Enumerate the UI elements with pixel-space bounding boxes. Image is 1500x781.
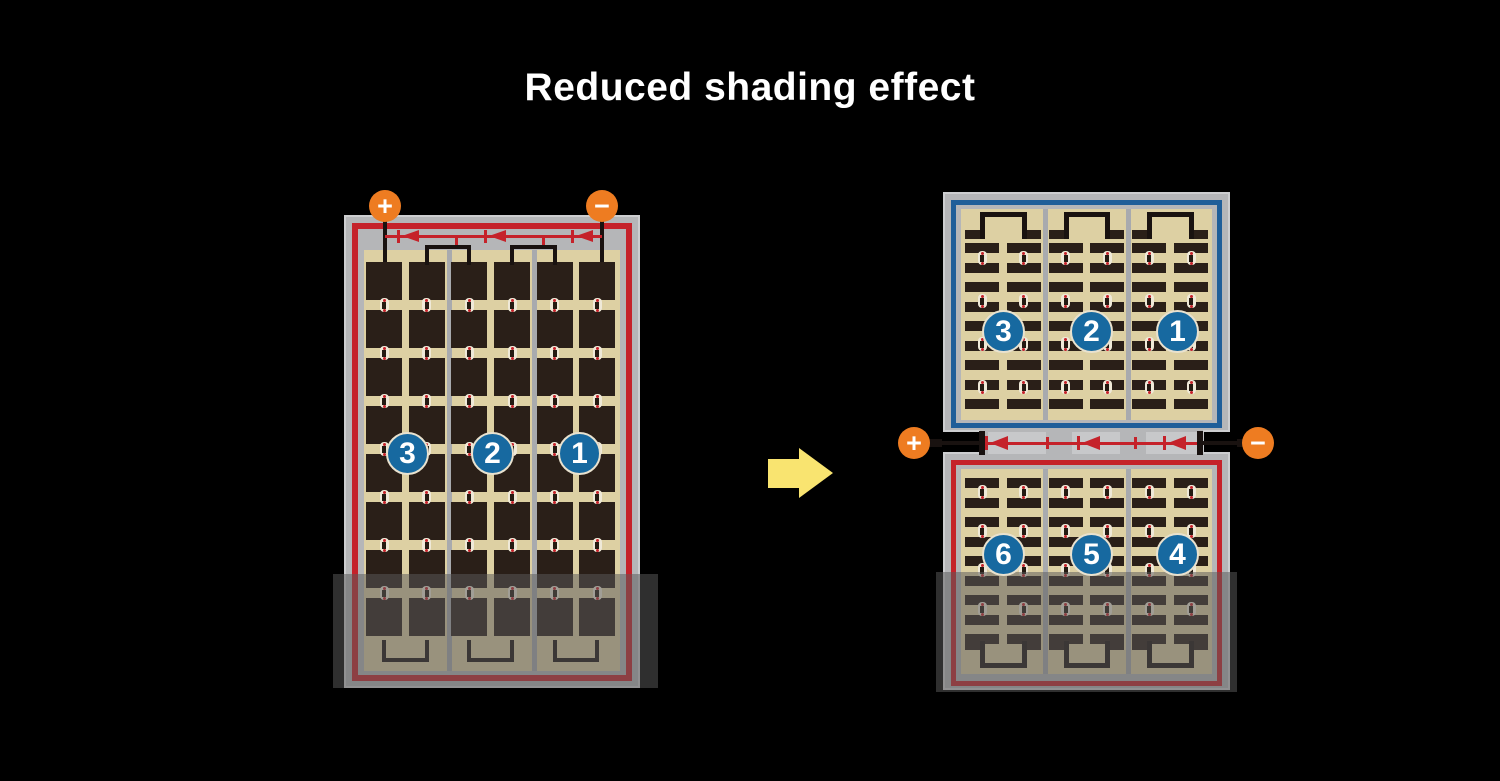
diagram-title: Reduced shading effect — [0, 66, 1500, 110]
cell-connector-dot — [1103, 485, 1112, 499]
reduced-shading-diagram: Reduced shading effect + − 3 2 1 + − 3 2… — [0, 0, 1500, 781]
solar-cell — [579, 358, 615, 396]
cell-connector-dot — [550, 346, 559, 360]
string-jumper-wire — [425, 245, 429, 265]
half-cell-bar — [965, 282, 999, 292]
solar-cell — [451, 502, 487, 540]
left-string-number-3: 3 — [386, 432, 429, 475]
cell-connector-dot — [978, 380, 987, 394]
solar-cell — [409, 310, 445, 348]
cell-connector-dot — [1061, 294, 1070, 308]
half-cell-bar — [1174, 282, 1208, 292]
half-cell-bar — [1110, 230, 1124, 239]
cell-connector-dot — [1061, 485, 1070, 499]
solar-cell — [537, 262, 573, 300]
solar-cell — [409, 502, 445, 540]
half-cell-bar — [1049, 230, 1064, 239]
diode-cathode-bar — [985, 436, 988, 450]
right-top-string-divider — [1126, 209, 1131, 420]
cell-connector-dot — [1187, 485, 1196, 499]
cell-connector-dot — [380, 538, 389, 552]
cell-connector-dot — [1145, 251, 1154, 265]
solar-cell — [494, 262, 530, 300]
string-jumper-wire — [1147, 212, 1194, 217]
cell-connector-dot — [1061, 251, 1070, 265]
diode-line-tick — [1046, 437, 1049, 449]
cell-connector-dot — [508, 490, 517, 504]
bypass-diode-icon — [402, 230, 419, 242]
cell-connector-dot — [593, 538, 602, 552]
cell-connector-dot — [380, 490, 389, 504]
string-jumper-wire — [510, 245, 514, 265]
half-cell-bar — [1132, 360, 1166, 370]
cell-connector-dot — [1019, 524, 1028, 538]
diode-cathode-bar — [484, 230, 487, 243]
left-panel-shading-overlay — [333, 574, 658, 688]
cell-connector-dot — [1061, 524, 1070, 538]
cell-connector-dot — [465, 394, 474, 408]
bypass-diode-icon — [990, 436, 1008, 450]
half-cell-bar — [1132, 230, 1147, 239]
half-cell-bar — [1007, 282, 1041, 292]
right-string-number-2: 2 — [1070, 310, 1113, 353]
cell-connector-dot — [550, 490, 559, 504]
diode-line-tick — [1134, 437, 1137, 449]
bypass-diode-icon — [576, 230, 593, 242]
right-string-number-3: 3 — [982, 310, 1025, 353]
right-negative-terminal: − — [1242, 427, 1274, 459]
half-cell-bar — [1174, 498, 1208, 508]
solar-cell — [494, 502, 530, 540]
left-string-number-2: 2 — [471, 432, 514, 475]
half-cell-bar — [1049, 399, 1083, 409]
cell-connector-dot — [1019, 485, 1028, 499]
cell-connector-dot — [1061, 337, 1070, 351]
cell-connector-dot — [1103, 251, 1112, 265]
plus-icon: + — [906, 430, 922, 457]
right-panel-shading-overlay — [936, 572, 1237, 692]
solar-cell — [579, 310, 615, 348]
cell-connector-dot — [550, 394, 559, 408]
cell-connector-dot — [380, 394, 389, 408]
string-jumper-wire — [467, 245, 471, 265]
string-jumper-wire — [1064, 212, 1069, 239]
half-cell-bar — [1027, 230, 1041, 239]
cell-connector-dot — [422, 538, 431, 552]
cell-connector-dot — [1145, 524, 1154, 538]
cell-connector-dot — [508, 346, 517, 360]
solar-cell — [409, 262, 445, 300]
plus-icon: + — [377, 193, 393, 220]
cell-connector-dot — [508, 298, 517, 312]
cell-connector-dot — [1019, 380, 1028, 394]
cell-connector-dot — [593, 394, 602, 408]
diode-cathode-bar — [397, 230, 400, 243]
cell-connector-dot — [422, 394, 431, 408]
half-cell-bar — [965, 360, 999, 370]
solar-cell — [451, 358, 487, 396]
bypass-diode-icon — [1168, 436, 1186, 450]
solar-cell — [494, 358, 530, 396]
half-cell-bar — [1007, 360, 1041, 370]
half-cell-bar — [1049, 282, 1083, 292]
right-string-number-1: 1 — [1156, 310, 1199, 353]
minus-icon: − — [594, 193, 610, 220]
half-cell-bar — [1049, 360, 1083, 370]
cell-connector-dot — [1187, 380, 1196, 394]
solar-cell — [537, 502, 573, 540]
half-cell-bar — [1132, 498, 1166, 508]
cell-connector-dot — [1061, 380, 1070, 394]
right-string-number-4: 4 — [1156, 533, 1199, 576]
half-cell-bar — [1174, 399, 1208, 409]
cell-connector-dot — [978, 524, 987, 538]
positive-bus-wire — [929, 439, 942, 447]
solar-cell — [366, 262, 402, 300]
cell-connector-dot — [380, 346, 389, 360]
right-string-number-6: 6 — [982, 533, 1025, 576]
cell-connector-dot — [508, 394, 517, 408]
cell-connector-dot — [550, 538, 559, 552]
cell-connector-dot — [1103, 380, 1112, 394]
cell-connector-dot — [593, 298, 602, 312]
cell-connector-dot — [1145, 380, 1154, 394]
string-jumper-wire — [553, 245, 557, 265]
solar-cell — [537, 358, 573, 396]
cell-connector-dot — [1145, 337, 1154, 351]
half-cell-bar — [1090, 399, 1124, 409]
cell-connector-dot — [465, 490, 474, 504]
string-jumper-wire — [510, 245, 557, 249]
cell-connector-dot — [550, 298, 559, 312]
cell-connector-dot — [508, 538, 517, 552]
half-cell-bar — [1194, 230, 1208, 239]
bus-end-bar — [979, 431, 985, 455]
half-cell-bar — [965, 399, 999, 409]
cell-connector-dot — [1145, 294, 1154, 308]
cell-connector-dot — [1187, 294, 1196, 308]
diode-cathode-bar — [1163, 436, 1166, 450]
solar-cell — [579, 502, 615, 540]
solar-cell — [494, 310, 530, 348]
solar-cell — [451, 310, 487, 348]
cell-connector-dot — [422, 490, 431, 504]
string-jumper-wire — [1147, 212, 1152, 239]
solar-cell — [366, 358, 402, 396]
cell-connector-dot — [1145, 485, 1154, 499]
cell-connector-dot — [1019, 251, 1028, 265]
transform-arrow-icon — [768, 459, 799, 488]
right-string-number-5: 5 — [1070, 533, 1113, 576]
solar-cell — [537, 310, 573, 348]
diode-cathode-bar — [1077, 436, 1080, 450]
cell-connector-dot — [1019, 294, 1028, 308]
string-jumper-wire — [980, 212, 1027, 217]
string-jumper-wire — [425, 245, 472, 249]
half-cell-bar — [965, 230, 980, 239]
cell-connector-dot — [978, 251, 987, 265]
solar-cell — [579, 262, 615, 300]
bypass-diode-icon — [489, 230, 506, 242]
cell-connector-dot — [978, 485, 987, 499]
cell-connector-dot — [380, 298, 389, 312]
bypass-diode-icon — [1082, 436, 1100, 450]
cell-connector-dot — [1103, 524, 1112, 538]
cell-connector-dot — [978, 294, 987, 308]
cell-connector-dot — [422, 298, 431, 312]
cell-connector-dot — [422, 346, 431, 360]
solar-cell — [451, 262, 487, 300]
cell-connector-dot — [593, 490, 602, 504]
positive-terminal-wire — [383, 220, 387, 267]
solar-cell — [366, 310, 402, 348]
half-cell-bar — [1049, 498, 1083, 508]
half-cell-bar — [1174, 360, 1208, 370]
string-jumper-wire — [1064, 212, 1111, 217]
half-cell-bar — [1132, 399, 1166, 409]
half-cell-bar — [1090, 282, 1124, 292]
half-cell-bar — [965, 498, 999, 508]
right-positive-terminal: + — [898, 427, 930, 459]
half-cell-bar — [1007, 498, 1041, 508]
solar-cell — [409, 358, 445, 396]
string-jumper-wire — [980, 212, 985, 239]
cell-connector-dot — [593, 346, 602, 360]
negative-terminal-wire — [600, 220, 604, 267]
diode-cathode-bar — [571, 230, 574, 243]
cell-connector-dot — [1187, 251, 1196, 265]
left-string-number-1: 1 — [558, 432, 601, 475]
cell-connector-dot — [465, 346, 474, 360]
solar-cell — [366, 502, 402, 540]
left-positive-terminal: + — [369, 190, 401, 222]
half-cell-bar — [1007, 399, 1041, 409]
half-cell-bar — [1090, 360, 1124, 370]
cell-connector-dot — [465, 538, 474, 552]
left-negative-terminal: − — [586, 190, 618, 222]
right-top-string-divider — [1043, 209, 1048, 420]
cell-connector-dot — [1103, 294, 1112, 308]
transform-arrow-head — [799, 448, 833, 498]
cell-connector-dot — [465, 298, 474, 312]
half-cell-bar — [1132, 282, 1166, 292]
minus-icon: − — [1250, 430, 1266, 457]
bus-end-bar — [1197, 431, 1203, 455]
half-cell-bar — [1090, 498, 1124, 508]
